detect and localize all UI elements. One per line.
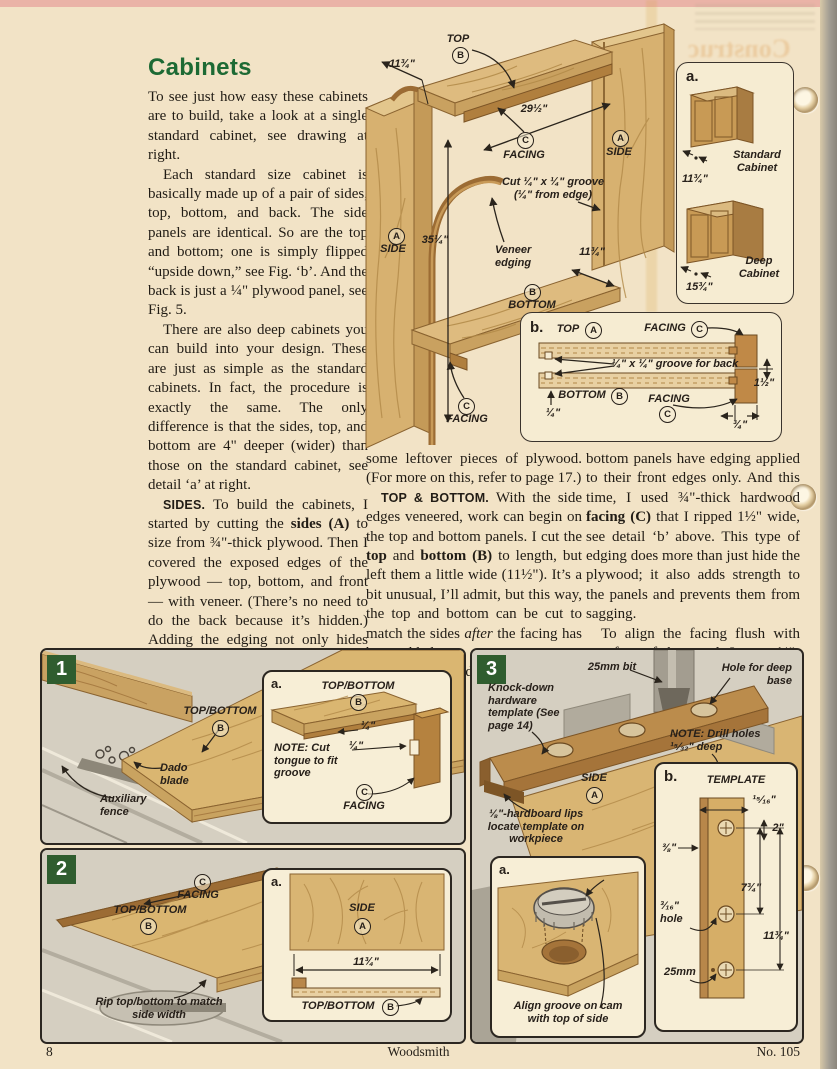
detail-a-box: a. Standard Cabinet 11¾" Deep Cabinet 15…	[676, 62, 794, 304]
fig3-inset-b-dim-2: 2"	[766, 822, 790, 835]
part-letter-facing-top: C	[517, 132, 534, 149]
fig1-inset-note: NOTE: Cut tongue to fit groove	[274, 742, 340, 780]
detail-b-height-dim: 1½"	[749, 377, 779, 390]
figure-3-number: 3	[477, 655, 506, 684]
detail-b-bottom-letter: B	[611, 388, 628, 405]
figure-3: 3 25mm bit Hole for deep base Knock-down…	[470, 648, 804, 1044]
detail-b-bottom-label: BOTTOM	[553, 389, 611, 402]
bottom-panel-label: BOTTOM	[490, 299, 574, 312]
paragraph: There are also deep cabinets you can bui…	[148, 321, 368, 496]
depth-dimension-top: 11¾"	[378, 58, 426, 71]
issue-number: No. 105	[700, 1044, 800, 1060]
paragraph: To see just how easy these cabinets are …	[148, 88, 368, 166]
veneer-edging-note: Veneer edging	[495, 244, 551, 269]
fig3-inset-b-hole-dim: ³⁄₁₆" hole	[660, 900, 700, 925]
fig3-template-note: Knock-down hardware template (See page 1…	[488, 682, 572, 733]
figure-1: 1 TOP/BOTTOM B Dado blade Auxiliary fenc…	[40, 648, 466, 845]
fig2-facing-label: FACING	[168, 889, 228, 902]
fig2-inset-workpiece-label: TOP/BOTTOM	[292, 1000, 384, 1013]
figure-2-number: 2	[47, 855, 76, 884]
detail-b-thickness-dim: ¾"	[727, 419, 753, 432]
fig1-workpiece-letter: B	[212, 720, 229, 737]
fig3-inset-b-dim-top: ¹⁵⁄₁₆"	[744, 794, 784, 807]
part-letter-top: B	[452, 47, 469, 64]
fig3-side-label: SIDE	[572, 772, 616, 785]
fig2-workpiece-letter: B	[140, 918, 157, 935]
fig3-inset-a: a. Align gro	[490, 856, 646, 1038]
figure-2: 2 C FACING TOP/BOTTOM B Rip top/bottom t…	[40, 848, 466, 1044]
deep-cabinet-dimension: 15¾"	[686, 281, 730, 294]
detail-b-quarter-dim: ¼"	[539, 407, 567, 420]
standard-cabinet-dimension: 11¾"	[682, 173, 726, 186]
fig1-dado-label: Dado blade	[160, 762, 208, 787]
bleedthrough-text-lines	[695, 4, 815, 30]
paragraph: TOP & BOTTOM. With the side edges veneer…	[366, 489, 582, 664]
detail-b-facing-top-label: FACING	[639, 322, 691, 335]
fig1-fence-label: Auxiliary fence	[100, 793, 164, 818]
fig2-inset-side-letter: A	[354, 918, 371, 935]
deep-cabinet-caption: Deep Cabinet	[729, 255, 789, 280]
fig3-inset-b-dim-38: ⅜"	[658, 842, 680, 855]
magazine-page: Construc Cabinets To see just how easy t…	[0, 0, 837, 1069]
fig3-hardboard-note: ⅛"-hardboard lips locate template on wor…	[480, 808, 592, 846]
detail-b-box: b. T	[520, 312, 782, 442]
fig3-drill-note: NOTE: Drill holes ¹⁵⁄₃₂" deep	[670, 728, 768, 753]
top-panel-label: TOP	[438, 33, 478, 46]
fig1-inset-a: a. TOP/BOTTOM B NOTE: Cut tongue to fit …	[262, 670, 452, 824]
fig2-inset-workpiece-letter: B	[382, 999, 399, 1016]
detail-b-facing-top-letter: C	[691, 321, 708, 338]
fig3-inset-a-caption: Align groove on cam with top of side	[504, 1000, 632, 1025]
fig1-inset-facing-label: FACING	[334, 800, 394, 813]
paragraph: Each standard size cabinet is basically …	[148, 166, 368, 321]
facing-label-bottom: FACING	[432, 413, 502, 426]
fig2-rip-note: Rip top/bottom to match side width	[94, 996, 224, 1021]
height-dimension: 35¼"	[414, 234, 456, 247]
binder-hole	[792, 87, 818, 113]
detail-b-facing-bottom-label: FACING	[641, 393, 697, 406]
fig1-inset-workpiece-letter: B	[350, 694, 367, 711]
facing-label-top: FACING	[494, 149, 554, 162]
fig3-inset-b: b.	[654, 762, 798, 1032]
detail-b-top-label: TOP	[551, 323, 585, 336]
groove-note: Cut ¼" x ¼" groove (¼" from edge)	[498, 176, 608, 201]
page-right-edge	[820, 0, 837, 1069]
side-label-right: SIDE	[594, 146, 644, 159]
detail-b-facing-bottom-letter: C	[659, 406, 676, 423]
fig3-inset-b-dim-25: 25mm	[664, 966, 704, 979]
part-letter-side-right: A	[612, 130, 629, 147]
detail-b-top-letter: A	[585, 322, 602, 339]
fig3-inset-b-title: TEMPLATE	[696, 774, 776, 787]
fig1-inset-facing-letter: C	[356, 784, 373, 801]
width-dimension: 29½"	[510, 103, 558, 116]
side-label-left: SIDE	[368, 243, 418, 256]
fig3-side-letter: A	[586, 787, 603, 804]
fig3-bit-label: 25mm bit	[580, 661, 644, 674]
fig2-workpiece-label: TOP/BOTTOM	[104, 904, 196, 917]
fig3-inset-b-dim-1134: 11¾"	[758, 930, 794, 943]
figure-1-number: 1	[47, 655, 76, 684]
detail-b-groove-note: ¼" x ¼" groove for back	[609, 358, 741, 371]
paragraph: bottom panels have edging applied to the…	[586, 450, 800, 625]
standard-cabinet-caption: Standard Cabinet	[725, 149, 789, 174]
fig2-inset-art	[264, 870, 450, 1020]
fig1-inset-dim1: ¼"	[356, 720, 380, 733]
article-title: Cabinets	[148, 54, 252, 82]
bleedthrough-headline: Construc	[688, 34, 791, 64]
fig3-hole-label: Hole for deep base	[712, 662, 792, 687]
fig3-inset-b-dim-734: 7¾"	[736, 882, 766, 895]
depth-dimension-bottom: 11¾"	[568, 246, 616, 259]
fig2-inset-side-label: SIDE	[340, 902, 384, 915]
fig2-inset-dim: 11¾"	[344, 956, 388, 969]
fig2-inset-a: a. SIDE A 11¾" TOP/BOTTOM B	[262, 868, 452, 1022]
fig1-workpiece-label: TOP/BOTTOM	[174, 705, 266, 718]
fig1-inset-dim2: ¼"	[344, 740, 368, 753]
fig1-inset-workpiece-label: TOP/BOTTOM	[308, 680, 408, 693]
